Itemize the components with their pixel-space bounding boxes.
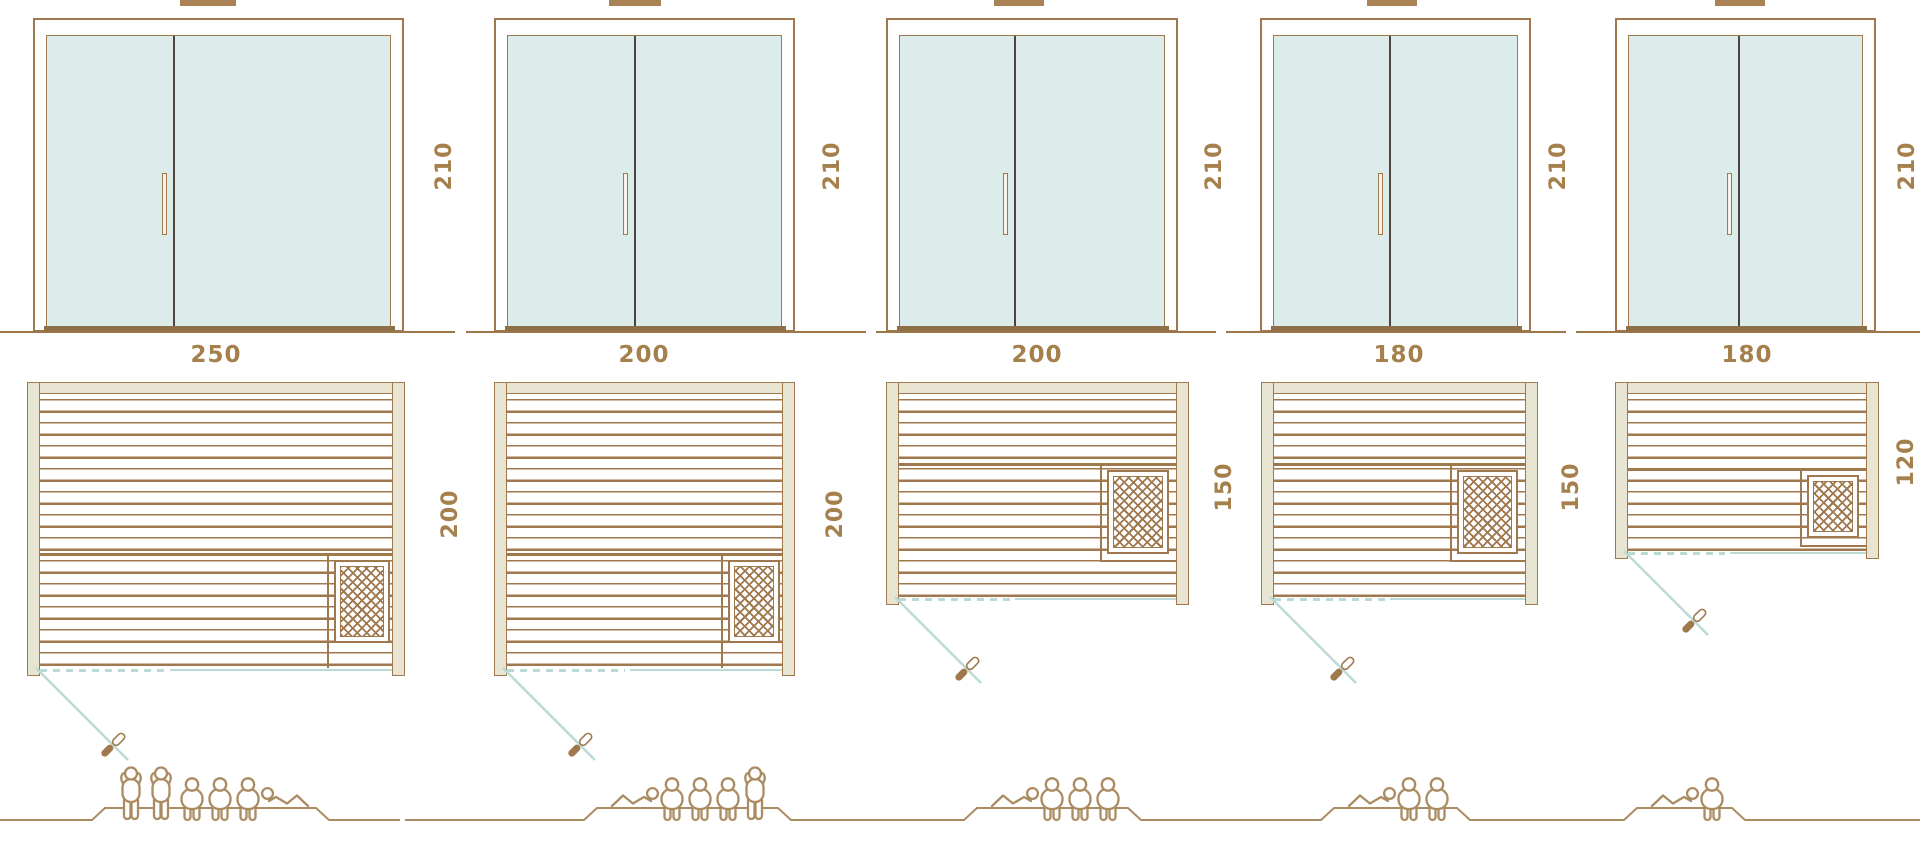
capacity-group	[0, 756, 400, 828]
heater-lattice-icon	[334, 560, 390, 643]
wall-left	[886, 382, 899, 605]
chimney-icon	[994, 0, 1044, 6]
door-pane-divider	[173, 36, 175, 329]
bench-edge	[1274, 463, 1525, 466]
wall-top	[886, 382, 1189, 394]
floor-plan	[494, 382, 795, 676]
person-seated-icon	[1399, 778, 1420, 820]
plan-depth-label: 200	[823, 474, 847, 554]
wall-right	[1866, 382, 1879, 559]
plan-depth-label: 200	[438, 474, 462, 554]
person-standing-icon	[745, 768, 764, 820]
wall-right	[1176, 382, 1189, 605]
wall-top	[1615, 382, 1879, 394]
capacity-group	[795, 756, 1185, 828]
glass-front-line	[1730, 552, 1866, 554]
plan-width-label: 180	[1687, 342, 1807, 368]
chimney-icon	[1367, 0, 1417, 6]
ground-line	[0, 331, 455, 333]
person-lying-icon	[612, 788, 658, 806]
person-lying-icon	[992, 788, 1038, 806]
bench-edge	[1628, 468, 1866, 471]
heater-partition	[1100, 463, 1102, 560]
plan-depth-label: 150	[1212, 447, 1236, 527]
capacity-group	[405, 756, 795, 828]
door-elevation	[33, 18, 404, 332]
door-handle-icon	[162, 173, 167, 235]
heater-partition	[1450, 463, 1452, 560]
door-swing-line-icon	[1618, 549, 1748, 659]
person-seated-icon	[1427, 778, 1448, 820]
plan-depth-label: 120	[1894, 422, 1918, 502]
bench-edge	[40, 553, 392, 556]
door-height-label: 210	[1546, 126, 1570, 206]
person-lying-icon	[1652, 788, 1698, 806]
chimney-icon	[180, 0, 236, 6]
door-height-label: 210	[1202, 126, 1226, 206]
door-elevation	[1615, 18, 1876, 332]
wall-right	[392, 382, 405, 676]
heater-partition	[721, 553, 723, 668]
heater-partition	[327, 553, 329, 668]
plan-depth-label: 150	[1559, 447, 1583, 527]
sauna-size-diagram: 210 210 210 210 210 250 200 200 180 180 …	[0, 0, 1920, 856]
door-swing-line-icon	[1264, 595, 1394, 705]
door-height-label: 210	[432, 126, 456, 206]
person-seated-icon	[1042, 778, 1063, 820]
plan-width-label: 250	[156, 342, 276, 368]
door-pane-divider	[1389, 36, 1391, 329]
floor-plan	[1615, 382, 1879, 559]
bench-edge	[507, 553, 782, 556]
heater-lattice-icon	[1807, 475, 1859, 538]
person-lying-icon	[1349, 788, 1395, 806]
door-height-label: 210	[820, 126, 844, 206]
door-elevation	[886, 18, 1178, 332]
glass-door-panes	[1273, 35, 1518, 330]
person-seated-icon	[1070, 778, 1091, 820]
person-seated-icon	[1702, 778, 1723, 820]
door-pane-divider	[1014, 36, 1016, 329]
glass-door-panes	[899, 35, 1165, 330]
door-handle-icon	[623, 173, 628, 235]
door-height-label: 210	[1895, 126, 1919, 206]
heater-lattice-icon	[728, 560, 780, 643]
plan-width-label: 200	[584, 342, 704, 368]
heater-lattice-icon	[1107, 470, 1169, 554]
door-handle-icon	[1727, 173, 1732, 235]
door-elevation	[494, 18, 795, 332]
person-seated-icon	[238, 778, 259, 820]
glass-front-line	[1015, 598, 1176, 600]
door-pane-divider	[1738, 36, 1740, 329]
floor-plan	[886, 382, 1189, 605]
heater-partition	[1800, 545, 1866, 547]
person-seated-icon	[662, 778, 683, 820]
capacity-group	[1575, 756, 1920, 828]
glass-front-line	[1390, 598, 1525, 600]
wall-top	[1261, 382, 1538, 394]
person-seated-icon	[1098, 778, 1119, 820]
wall-top	[27, 382, 405, 394]
person-seated-icon	[690, 778, 711, 820]
ground-line	[1576, 331, 1920, 333]
glass-front-line	[170, 669, 392, 671]
wall-left	[1615, 382, 1628, 559]
person-seated-icon	[182, 778, 203, 820]
chimney-icon	[609, 0, 661, 6]
person-standing-icon	[151, 768, 170, 820]
person-seated-icon	[718, 778, 739, 820]
heater-partition	[1100, 560, 1176, 562]
chimney-icon	[1715, 0, 1765, 6]
door-handle-icon	[1003, 173, 1008, 235]
glass-front-line	[630, 669, 782, 671]
wall-left	[494, 382, 507, 676]
person-lying-icon	[262, 788, 308, 806]
ground-line	[466, 331, 866, 333]
floor-plan	[1261, 382, 1538, 605]
wall-left	[27, 382, 40, 676]
person-seated-icon	[210, 778, 231, 820]
wall-right	[782, 382, 795, 676]
glass-door-panes	[46, 35, 391, 330]
door-pane-divider	[634, 36, 636, 329]
heater-lattice-icon	[1457, 470, 1518, 554]
heater-partition	[1450, 560, 1525, 562]
door-elevation	[1260, 18, 1531, 332]
plan-width-label: 180	[1339, 342, 1459, 368]
bench-edge	[899, 463, 1176, 466]
ground-line	[1226, 331, 1566, 333]
wall-right	[1525, 382, 1538, 605]
wall-top	[494, 382, 795, 394]
glass-door-panes	[1628, 35, 1863, 330]
glass-door-panes	[507, 35, 782, 330]
heater-partition	[1800, 468, 1802, 545]
plan-width-label: 200	[977, 342, 1097, 368]
wall-left	[1261, 382, 1274, 605]
capacity-group	[1185, 756, 1575, 828]
floor-plan	[27, 382, 405, 676]
door-handle-icon	[1378, 173, 1383, 235]
person-standing-icon	[121, 768, 140, 820]
door-swing-line-icon	[889, 595, 1019, 705]
ground-line	[876, 331, 1216, 333]
